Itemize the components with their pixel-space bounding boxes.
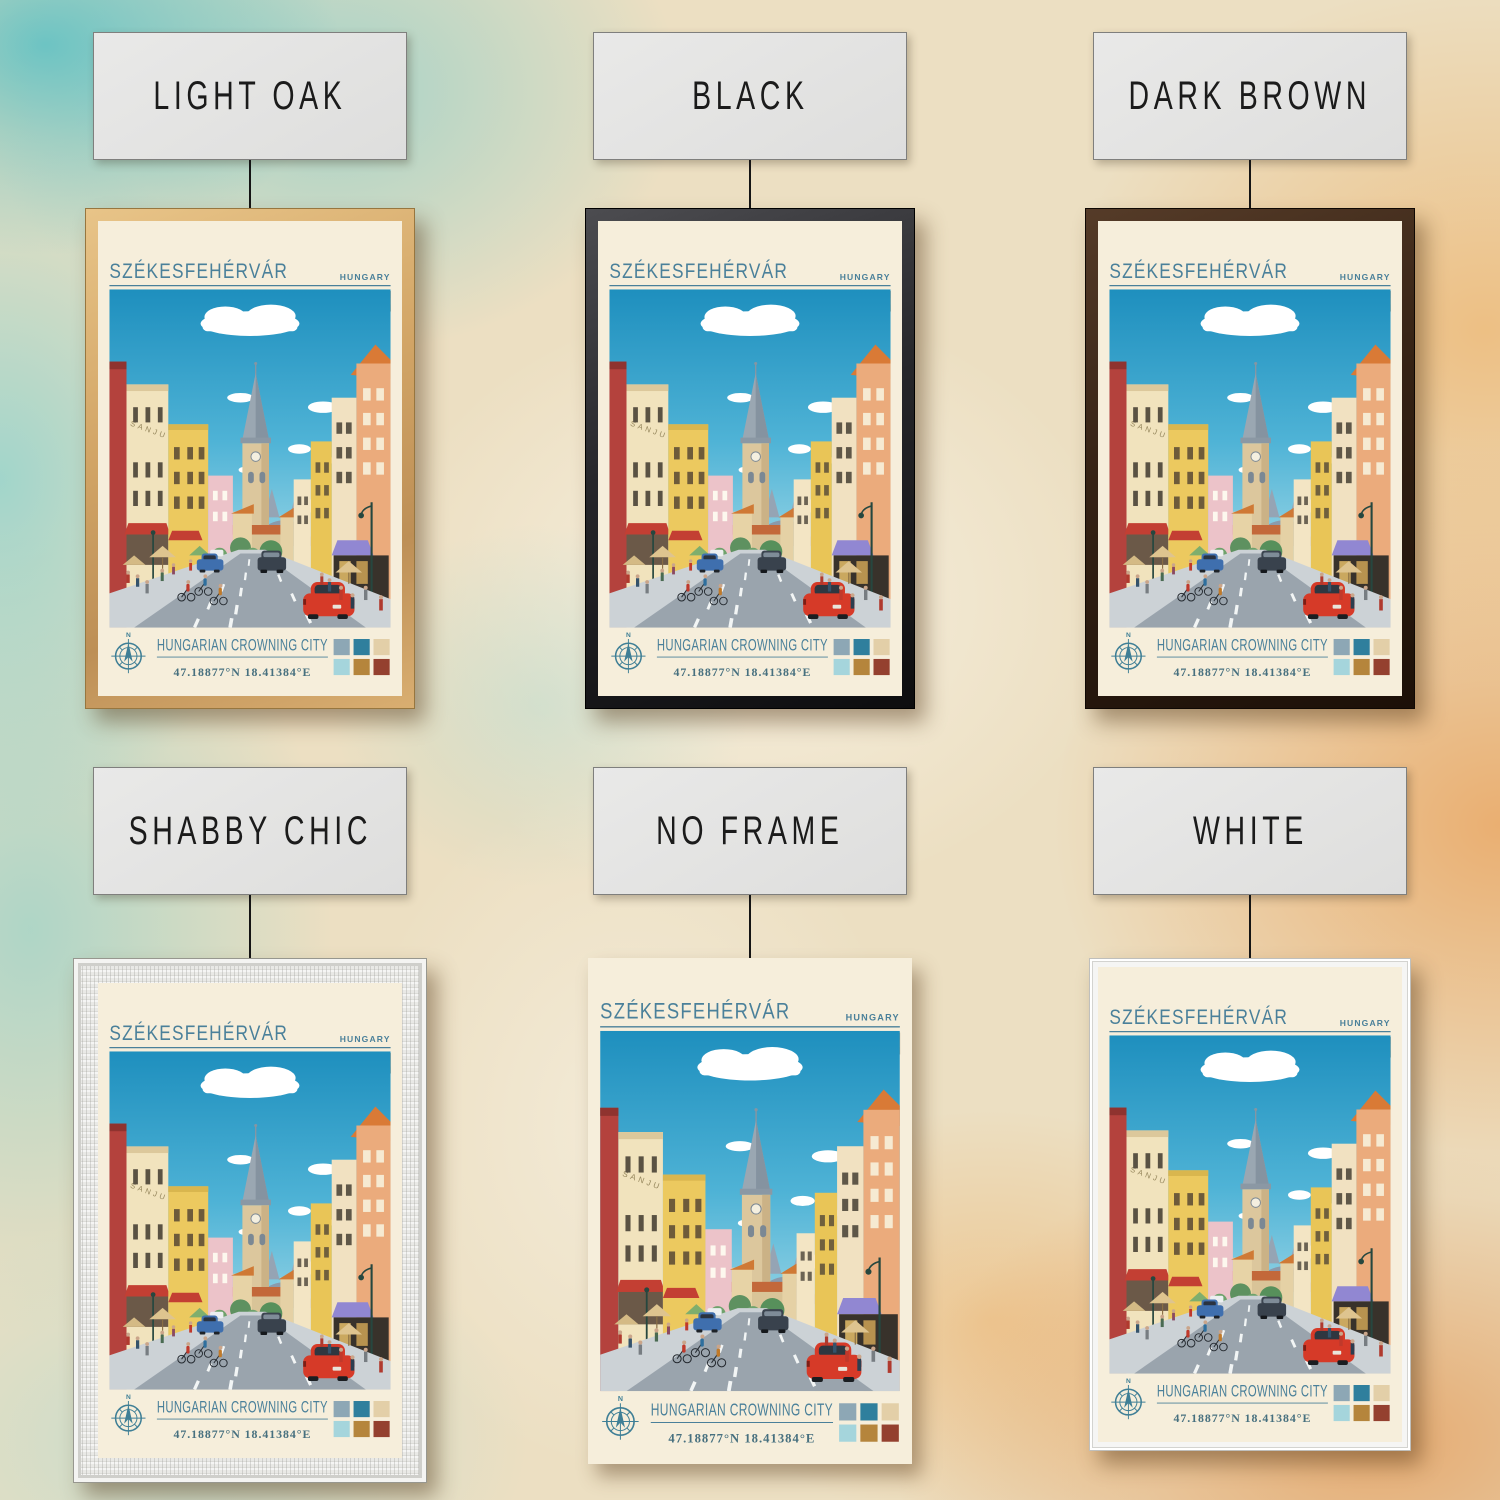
travel-poster-svg: SZÉKESFEHÉRVÁR HUNGARY	[1098, 967, 1402, 1442]
red-awning-small	[663, 1288, 699, 1298]
poster-city-title: SZÉKESFEHÉRVÁR	[1109, 1006, 1288, 1029]
purple-awning	[1332, 1286, 1374, 1301]
compass-north-label: N	[126, 632, 131, 639]
poster-country-label: HUNGARY	[340, 1034, 391, 1044]
poster-artwork: SZÉKESFEHÉRVÁR HUNGARY	[1098, 221, 1402, 696]
poster-coordinates: 47.18877°N 18.41384°E	[173, 1427, 311, 1441]
variant-cell-white: WHITE SZÉKESFEHÉRVÁR HUNGARY	[1000, 750, 1500, 1500]
red-awning-small	[1168, 531, 1202, 541]
variant-label: BLACK	[692, 73, 809, 120]
compass-north-label: N	[1126, 632, 1131, 639]
street-scene: SANJU	[1109, 1035, 1390, 1374]
purple-awning	[1332, 540, 1374, 555]
variant-cell-shabby-chic: SHABBY CHIC SZÉKESFEHÉRVÁR HUNGARY	[0, 750, 500, 1500]
variant-label-card: BLACK	[593, 32, 907, 160]
variant-label: DARK BROWN	[1129, 73, 1371, 120]
frame-variants-grid: LIGHT OAK SZÉKESFEHÉRVÁR HUNGARY	[0, 0, 1500, 1500]
poster-artwork: SZÉKESFEHÉRVÁR HUNGARY	[598, 221, 902, 696]
red-awning	[1125, 523, 1171, 534]
hanging-wire	[749, 160, 751, 208]
variant-label: NO FRAME	[656, 808, 843, 855]
purple-awning	[332, 540, 374, 555]
poster-city-title: SZÉKESFEHÉRVÁR	[1109, 260, 1288, 283]
travel-poster-svg: SZÉKESFEHÉRVÁR HUNGARY	[598, 221, 902, 696]
poster-city-title: SZÉKESFEHÉRVÁR	[609, 260, 788, 283]
poster-coordinates: 47.18877°N 18.41384°E	[173, 665, 311, 679]
variant-label-card: SHABBY CHIC	[93, 767, 407, 895]
variant-label-card: WHITE	[1093, 767, 1407, 895]
compass-north-label: N	[1126, 1378, 1131, 1385]
red-awning-small	[1168, 1277, 1202, 1287]
street-scene: SANJU	[1109, 289, 1390, 628]
variant-label: SHABBY CHIC	[128, 808, 371, 855]
variant-label: WHITE	[1193, 808, 1308, 855]
framed-poster-light-oak: SZÉKESFEHÉRVÁR HUNGARY	[85, 208, 415, 709]
red-awning-small	[168, 531, 202, 541]
poster-tagline: HUNGARIAN CROWNING CITY	[651, 1399, 833, 1419]
compass-north-label: N	[618, 1395, 623, 1403]
framed-poster-black: SZÉKESFEHÉRVÁR HUNGARY	[585, 208, 915, 709]
red-awning	[1125, 1269, 1171, 1280]
unframed-poster: SZÉKESFEHÉRVÁR HUNGARY	[588, 958, 912, 1464]
variant-cell-no-frame: NO FRAME SZÉKESFEHÉRVÁR HUNGARY	[500, 750, 1000, 1500]
poster-city-title: SZÉKESFEHÉRVÁR	[109, 1022, 288, 1045]
poster-coordinates: 47.18877°N 18.41384°E	[1173, 665, 1311, 679]
poster-coordinates: 47.18877°N 18.41384°E	[673, 665, 811, 679]
poster-country-label: HUNGARY	[1340, 272, 1391, 282]
travel-poster-svg: SZÉKESFEHÉRVÁR HUNGARY	[1098, 221, 1402, 696]
hanging-wire	[249, 160, 251, 208]
travel-poster-svg: SZÉKESFEHÉRVÁR HUNGARY	[98, 983, 402, 1458]
poster-city-title: SZÉKESFEHÉRVÁR	[109, 260, 288, 283]
poster-artwork: SZÉKESFEHÉRVÁR HUNGARY	[588, 958, 912, 1464]
poster-country-label: HUNGARY	[846, 1013, 900, 1023]
travel-poster-svg: SZÉKESFEHÉRVÁR HUNGARY	[98, 221, 402, 696]
street-scene: SANJU	[109, 1051, 390, 1390]
purple-awning	[332, 1302, 374, 1317]
variant-label-card: DARK BROWN	[1093, 32, 1407, 160]
variant-label-card: NO FRAME	[593, 767, 907, 895]
variant-cell-dark-brown: DARK BROWN SZÉKESFEHÉRVÁR HUNGARY	[1000, 0, 1500, 750]
poster-artwork: SZÉKESFEHÉRVÁR HUNGARY	[1098, 967, 1402, 1442]
variant-cell-black: BLACK SZÉKESFEHÉRVÁR HUNGARY	[500, 0, 1000, 750]
poster-city-title: SZÉKESFEHÉRVÁR	[600, 999, 790, 1024]
variant-cell-light-oak: LIGHT OAK SZÉKESFEHÉRVÁR HUNGARY	[0, 0, 500, 750]
poster-coordinates: 47.18877°N 18.41384°E	[668, 1432, 815, 1446]
framed-poster-dark-brown: SZÉKESFEHÉRVÁR HUNGARY	[1085, 208, 1415, 709]
poster-artwork: SZÉKESFEHÉRVÁR HUNGARY	[98, 983, 402, 1458]
travel-poster-svg: SZÉKESFEHÉRVÁR HUNGARY	[588, 958, 912, 1464]
purple-awning	[832, 540, 874, 555]
variant-label: LIGHT OAK	[153, 73, 346, 120]
red-awning	[125, 1285, 171, 1296]
red-awning	[125, 523, 171, 534]
street-scene: SANJU	[600, 1031, 900, 1392]
compass-north-label: N	[126, 1394, 131, 1401]
poster-tagline: HUNGARIAN CROWNING CITY	[1157, 1382, 1328, 1400]
purple-awning	[837, 1298, 882, 1314]
poster-tagline: HUNGARIAN CROWNING CITY	[157, 636, 328, 654]
product-mockup-canvas: LIGHT OAK SZÉKESFEHÉRVÁR HUNGARY	[0, 0, 1500, 1500]
hanging-wire	[1249, 895, 1251, 958]
red-awning-small	[668, 531, 702, 541]
poster-artwork: SZÉKESFEHÉRVÁR HUNGARY	[98, 221, 402, 696]
framed-poster-shabby-chic: SZÉKESFEHÉRVÁR HUNGARY	[73, 958, 427, 1483]
poster-coordinates: 47.18877°N 18.41384°E	[1173, 1411, 1311, 1425]
street-scene: SANJU	[609, 289, 890, 628]
hanging-wire	[249, 895, 251, 958]
hanging-wire	[749, 895, 751, 958]
red-awning	[616, 1280, 665, 1292]
hanging-wire	[1249, 160, 1251, 208]
poster-country-label: HUNGARY	[840, 272, 891, 282]
variant-label-card: LIGHT OAK	[93, 32, 407, 160]
poster-tagline: HUNGARIAN CROWNING CITY	[1157, 636, 1328, 654]
street-scene: SANJU	[109, 289, 390, 628]
poster-tagline: HUNGARIAN CROWNING CITY	[657, 636, 828, 654]
poster-country-label: HUNGARY	[1340, 1018, 1391, 1028]
red-awning	[625, 523, 671, 534]
compass-north-label: N	[626, 632, 631, 639]
framed-poster-white: SZÉKESFEHÉRVÁR HUNGARY	[1089, 958, 1411, 1451]
red-awning-small	[168, 1293, 202, 1303]
poster-tagline: HUNGARIAN CROWNING CITY	[157, 1398, 328, 1416]
poster-country-label: HUNGARY	[340, 272, 391, 282]
